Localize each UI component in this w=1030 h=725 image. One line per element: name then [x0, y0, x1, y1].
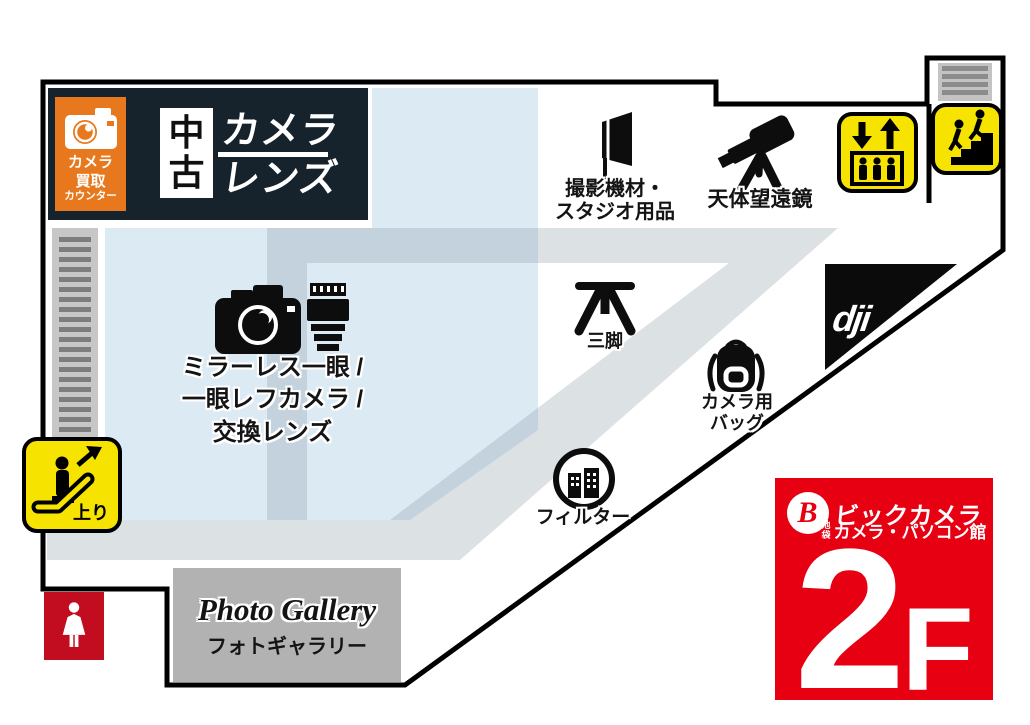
- tripod-area-label: 三脚: [573, 331, 637, 352]
- floor-badge: B ビックカメラ 池 袋 カメラ・パソコン館 2 F: [775, 478, 993, 700]
- used-mark-char1: 中: [168, 113, 204, 153]
- stairs-icon: [935, 107, 999, 171]
- floor-letter: F: [902, 606, 974, 696]
- mirrorless-line3: 交換レンズ: [150, 417, 395, 449]
- telescope-area-label: 天体望遠鏡: [695, 188, 825, 212]
- floor-number: 2 F: [775, 530, 993, 696]
- used-camera-word: カメラ: [219, 112, 341, 150]
- filter-icon: [551, 446, 617, 512]
- tripod-icon: [567, 276, 643, 336]
- camera-buy-counter-badge: カメラ 買取 カウンター: [55, 97, 126, 211]
- telescope-icon: [710, 110, 805, 192]
- camera-bag-icon: [705, 336, 767, 400]
- buy-counter-line3: カウンター: [64, 190, 117, 204]
- camera-bag-line2: バッグ: [688, 413, 786, 434]
- woman-icon: [49, 595, 99, 657]
- mirrorless-area-label: ミラーレス一眼 / 一眼レフカメラ / 交換レンズ: [150, 352, 395, 449]
- photo-gallery-subtitle: フォトギャラリー: [207, 630, 367, 659]
- photo-gallery-title: Photo Gallery: [198, 592, 376, 628]
- stairs-sign: [931, 103, 1003, 175]
- buy-counter-line2: 買取: [75, 174, 105, 191]
- escalator-steps-pattern: [59, 237, 91, 435]
- used-mark: 中 古: [160, 108, 213, 198]
- studio-area-label: 撮影機材・ スタジオ用品: [540, 178, 690, 224]
- used-mark-char2: 古: [168, 153, 204, 193]
- camera-bag-area-label: カメラ用 バッグ: [688, 392, 786, 433]
- photo-gallery-area: Photo Gallery フォトギャラリー: [173, 568, 401, 682]
- used-lens-word: レンズ: [219, 160, 341, 198]
- staircase-steps-pattern: [942, 66, 988, 98]
- logo-divider: [218, 152, 328, 157]
- escalator-up-sign: 上り: [22, 437, 122, 533]
- filter-area-label: フィルター: [528, 507, 638, 529]
- camera-bag-line1: カメラ用: [688, 392, 786, 413]
- elevator-sign: [837, 112, 918, 193]
- floor-digit: 2: [794, 544, 899, 696]
- mirrorless-line2: 一眼レフカメラ /: [150, 384, 395, 416]
- camera-lens-icon: [213, 278, 353, 358]
- used-camera-header: カメラ 買取 カウンター 中 古 カメラ レンズ: [48, 88, 368, 220]
- mirrorless-line1: ミラーレス一眼 /: [150, 352, 395, 384]
- escalator-up-label: 上り: [73, 499, 109, 525]
- studio-line2: スタジオ用品: [540, 201, 690, 224]
- womens-restroom: [44, 592, 104, 660]
- escalator-shaft-strip: [52, 228, 98, 444]
- elevator-icon: [841, 116, 914, 189]
- buy-counter-line1: カメラ: [68, 155, 113, 172]
- staircase-strip: [938, 63, 992, 101]
- camera-buy-icon: [61, 103, 121, 153]
- floor-map-2f: カメラ 買取 カウンター 中 古 カメラ レンズ ミラーレス一眼 / 一眼レフカ…: [0, 0, 1030, 725]
- studio-line1: 撮影機材・: [540, 178, 690, 201]
- dji-logo: dji: [830, 298, 926, 340]
